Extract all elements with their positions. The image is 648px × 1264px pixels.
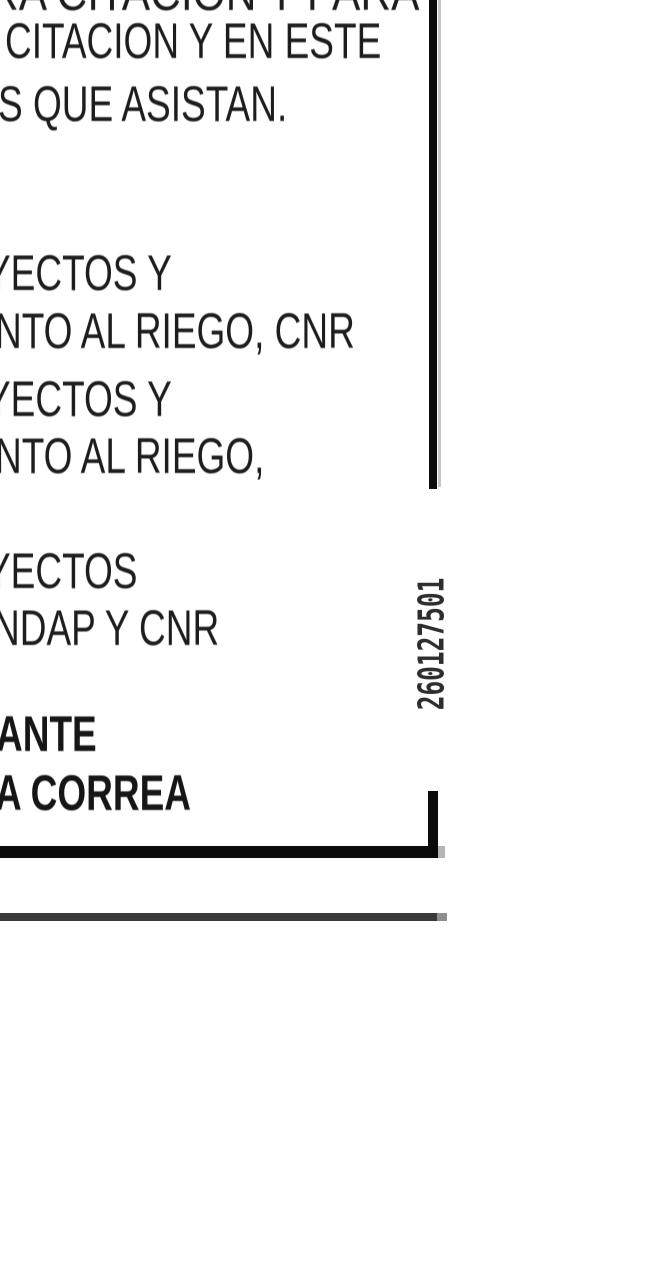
- table-right-border: [429, 0, 437, 489]
- separator-rule: [0, 913, 437, 921]
- doc-line-yectos: YECTOS: [0, 546, 137, 596]
- scanned-document-page: RA CITACION Y PARA CITACION Y EN ESTE S …: [0, 0, 648, 1264]
- table-bottom-border: [0, 846, 438, 858]
- separator-rule-end: [437, 913, 447, 921]
- doc-line-yectos-y-1: YECTOS Y: [0, 248, 172, 298]
- table-corner-shadow: [438, 846, 445, 858]
- doc-line-ante: ANTE: [0, 709, 97, 759]
- doc-line-que-asistan: S QUE ASISTAN.: [0, 79, 287, 129]
- vertical-stamp-number: 260127501: [413, 581, 453, 707]
- doc-line-ndap-y-cnr: NDAP Y CNR: [0, 603, 219, 653]
- doc-line-riego-cnr: NTO AL RIEGO, CNR: [0, 306, 355, 356]
- table-right-border-shadow: [438, 0, 441, 487]
- doc-line-yectos-y-2: YECTOS Y: [0, 374, 172, 424]
- doc-line-correa: A CORREA: [0, 768, 191, 818]
- doc-line-citacion-este: CITACION Y EN ESTE: [5, 16, 381, 66]
- doc-line-riego: NTO AL RIEGO,: [0, 431, 264, 481]
